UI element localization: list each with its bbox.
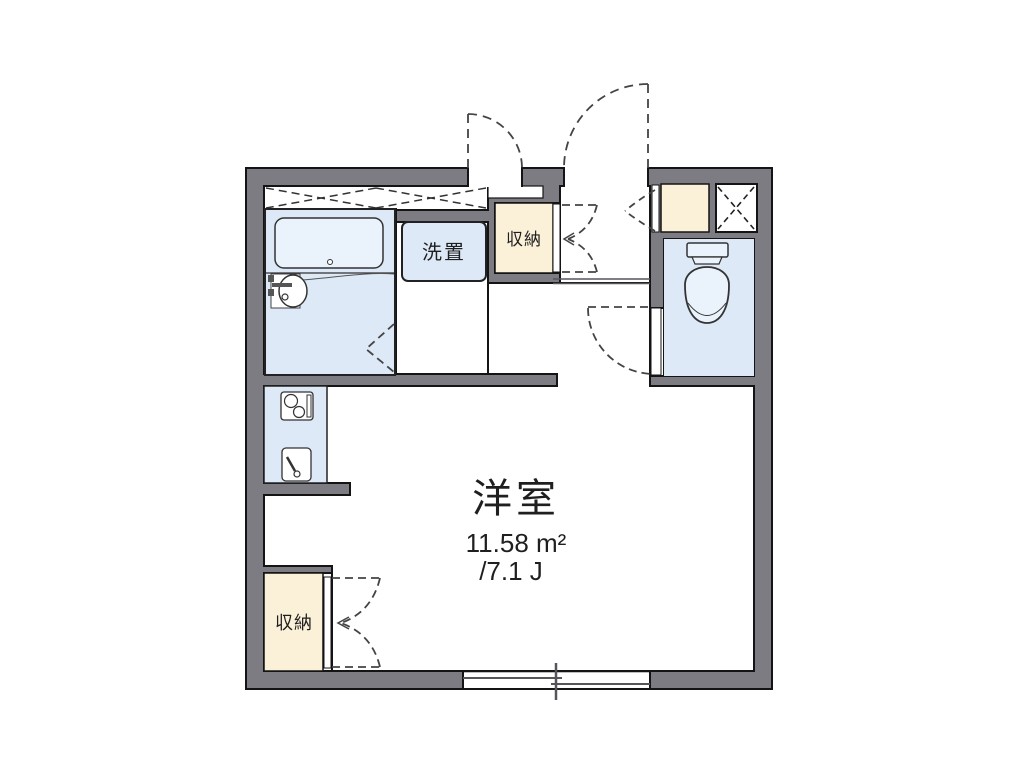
main-room-area-m2: 11.58 m²	[466, 528, 567, 558]
upper-strip-cross-icon	[266, 188, 486, 208]
entry-pocket	[488, 186, 543, 198]
entrance-door-gap	[565, 166, 647, 187]
main-room-labels: 洋室 11.58 m² /7.1 J	[466, 477, 567, 586]
burner-icon	[285, 395, 298, 408]
shoe-box	[661, 184, 709, 232]
sink-drain-icon	[282, 294, 288, 300]
toilet-tank	[687, 243, 728, 257]
bathroom-sink	[279, 275, 307, 307]
floor-plan-page: 洗置 収納 収納	[0, 0, 1016, 772]
storage-top-label: 収納	[506, 230, 542, 249]
bathroom	[265, 209, 395, 375]
storage-top: 収納	[495, 203, 597, 273]
toilet-bowl	[685, 267, 729, 323]
faucet-handle-icon	[268, 289, 274, 296]
grill-icon	[307, 395, 311, 417]
storage-top-bifold-icon	[562, 205, 597, 272]
faucet-icon	[268, 275, 274, 282]
storage-exterior-door-swing-icon	[468, 114, 522, 168]
exterior-doors	[468, 84, 648, 168]
storage-bottom-label: 収納	[275, 613, 313, 633]
laundry-label: 洗置	[422, 241, 466, 264]
entrance-door-swing-icon	[564, 84, 648, 168]
faucet-spout-icon	[272, 283, 292, 287]
toilet-door-swing-icon	[588, 307, 654, 374]
bathtub-drain-icon	[328, 260, 333, 265]
laundry-space: 洗置	[402, 222, 486, 281]
storage-door-gap	[469, 166, 521, 187]
kitchen	[264, 386, 327, 483]
toilet-hinge	[692, 257, 722, 264]
main-room-name: 洋室	[472, 477, 560, 521]
main-room-area-tatami: /7.1 J	[479, 556, 543, 586]
storage-bottom-door-panel	[324, 577, 331, 668]
floor-plan-drawing: 洗置 収納 収納	[0, 0, 1016, 772]
storage-bottom-bifold-icon	[332, 578, 380, 667]
storage-bottom: 収納	[264, 573, 380, 671]
toilet-room	[588, 239, 754, 376]
storage-top-door-panel	[553, 204, 560, 272]
burner-icon	[294, 407, 305, 418]
toilet-door-panel	[651, 308, 661, 375]
kitchen-drain-icon	[294, 471, 300, 477]
